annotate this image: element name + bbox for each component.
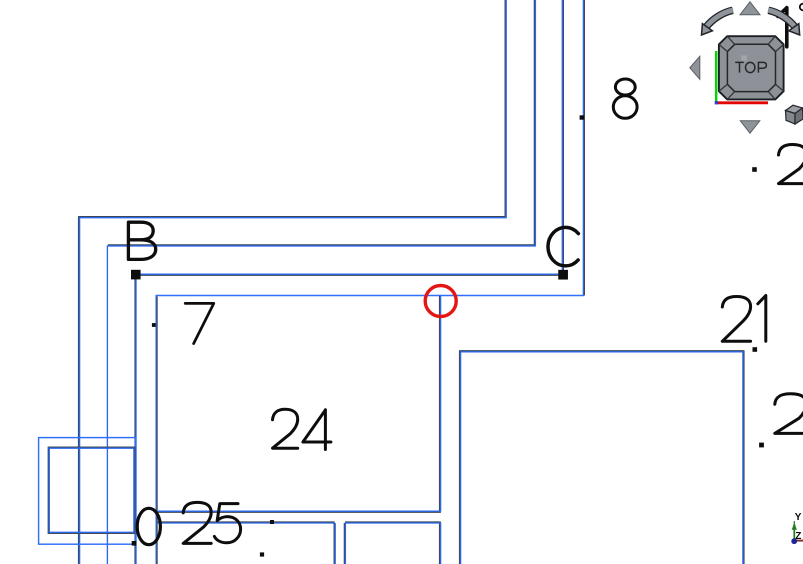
svg-text:Y: Y xyxy=(795,512,802,523)
